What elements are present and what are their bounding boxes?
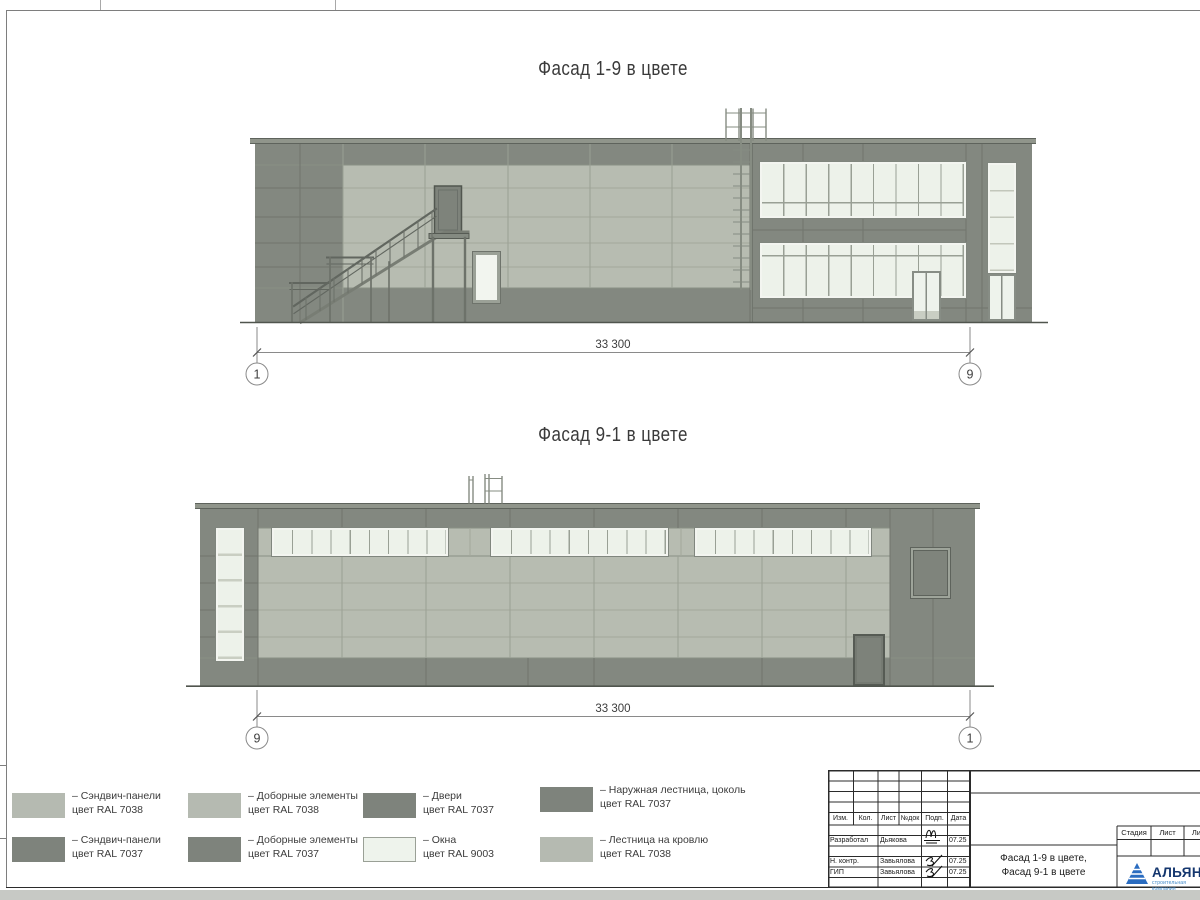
legend-swatch <box>363 837 416 862</box>
company-logo-icon <box>1125 862 1149 886</box>
roof-ladder-top-structure <box>469 474 502 504</box>
overlay-linework: 33 300 1 9 33 300 9 1 <box>0 0 1200 900</box>
tb-name-3: Завьялова <box>880 869 915 876</box>
tb-doc-title-line1: Фасад 1-9 в цвете, <box>970 853 1117 864</box>
tb-header-izm: Изм. <box>828 815 853 822</box>
tb-stage-header: Стадия <box>1117 828 1151 837</box>
legend-swatch <box>12 837 65 862</box>
company-logo-text: АЛЬЯНС <box>1152 865 1200 880</box>
legend-swatch <box>12 793 65 818</box>
tb-role-3: ГИП <box>830 869 844 876</box>
tb-header-ndok: №док <box>898 815 922 822</box>
axis-1b: 1 <box>967 732 974 746</box>
legend-swatch <box>363 793 416 818</box>
tb-role-2: Н. контр. <box>830 858 859 865</box>
legend-swatch <box>188 793 241 818</box>
external-staircase <box>290 186 469 322</box>
tb-role-1: Разработал <box>830 837 868 844</box>
tb-name-1: Дьякова <box>880 837 907 844</box>
dim2-value: 33 300 <box>595 703 630 715</box>
tb-sheet-header: Лист <box>1151 828 1184 837</box>
tb-sheets-header: Листов <box>1184 828 1200 837</box>
axis-9: 9 <box>967 368 974 382</box>
drawing-sheet: { "titles": { "facade1": "Фасад 1-9 в цв… <box>0 0 1200 900</box>
page-edge-strip <box>0 890 1200 900</box>
tb-header-data: Дата <box>947 815 970 822</box>
title-block: Изм. Кол. Лист №док Подп. Дата Разработа… <box>828 770 1200 888</box>
axis-1: 1 <box>254 368 261 382</box>
tb-date-3: 07.25 <box>949 869 967 876</box>
signatures <box>922 826 948 884</box>
legend-swatch <box>540 787 593 812</box>
legend-swatch <box>540 837 593 862</box>
tb-name-2: Завьялова <box>880 858 915 865</box>
roof-ladder <box>726 108 766 290</box>
tb-header-list: Лист <box>878 815 899 822</box>
tb-header-podp: Подп. <box>921 815 948 822</box>
dimension-facade1: 33 300 1 9 <box>246 327 981 385</box>
legend-swatch <box>188 837 241 862</box>
tb-doc-title-line2: Фасад 9-1 в цвете <box>970 867 1117 878</box>
dim1-value: 33 300 <box>595 339 630 351</box>
axis-9b: 9 <box>254 732 261 746</box>
tb-header-kol: Кол. <box>853 815 878 822</box>
tb-date-1: 07.25 <box>949 837 967 844</box>
dimension-facade2: 33 300 9 1 <box>246 690 981 749</box>
tb-date-2: 07.25 <box>949 858 967 865</box>
